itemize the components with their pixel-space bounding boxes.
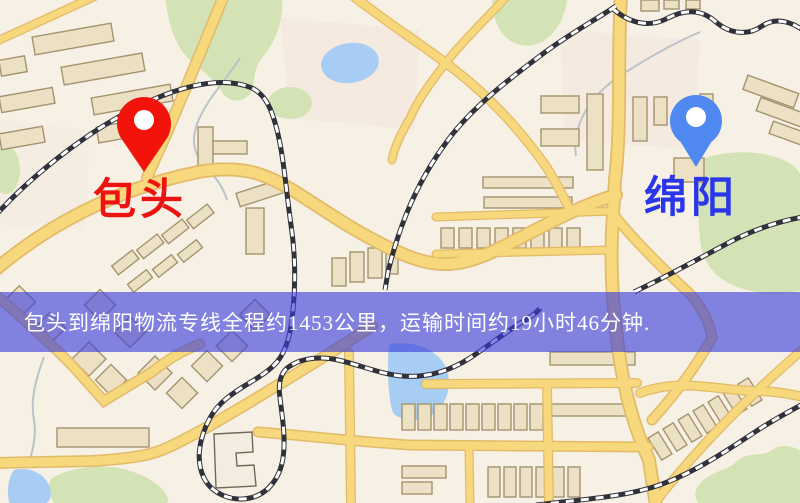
map-graphic [0,0,800,503]
destination-city-label: 绵阳 [644,177,738,220]
map-screenshot: 包头 绵阳 包头到绵阳物流专线全程约1453公里，运输时间约19小时46分钟. [0,0,800,503]
route-info-banner: 包头到绵阳物流专线全程约1453公里，运输时间约19小时46分钟. [0,292,800,352]
origin-city-label: 包头 [93,179,187,222]
route-info-text: 包头到绵阳物流专线全程约1453公里，运输时间约19小时46分钟. [0,307,650,337]
